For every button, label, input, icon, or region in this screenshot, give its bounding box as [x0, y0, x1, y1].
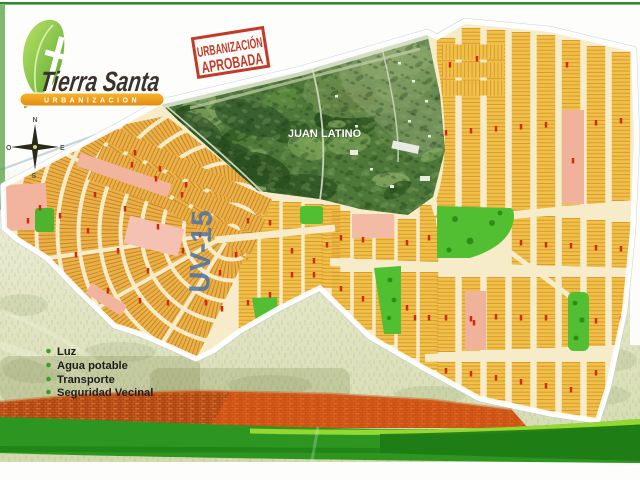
svg-text:Transporte: Transporte — [57, 374, 115, 386]
svg-text:JUAN LATINO: JUAN LATINO — [288, 128, 362, 140]
svg-text:Tierra Santa: Tierra Santa — [38, 66, 161, 97]
svg-text:O: O — [6, 145, 12, 152]
svg-text:UV-15: UV-15 — [184, 209, 219, 293]
svg-text:Seguridad Vecinal: Seguridad Vecinal — [57, 387, 153, 399]
svg-text:URBANIZACION: URBANIZACION — [44, 98, 140, 105]
svg-text:S: S — [32, 173, 37, 180]
svg-text:Luz: Luz — [57, 346, 77, 358]
svg-text:E: E — [60, 145, 65, 152]
svg-text:Agua potable: Agua potable — [57, 360, 128, 372]
svg-text:N: N — [33, 117, 38, 124]
